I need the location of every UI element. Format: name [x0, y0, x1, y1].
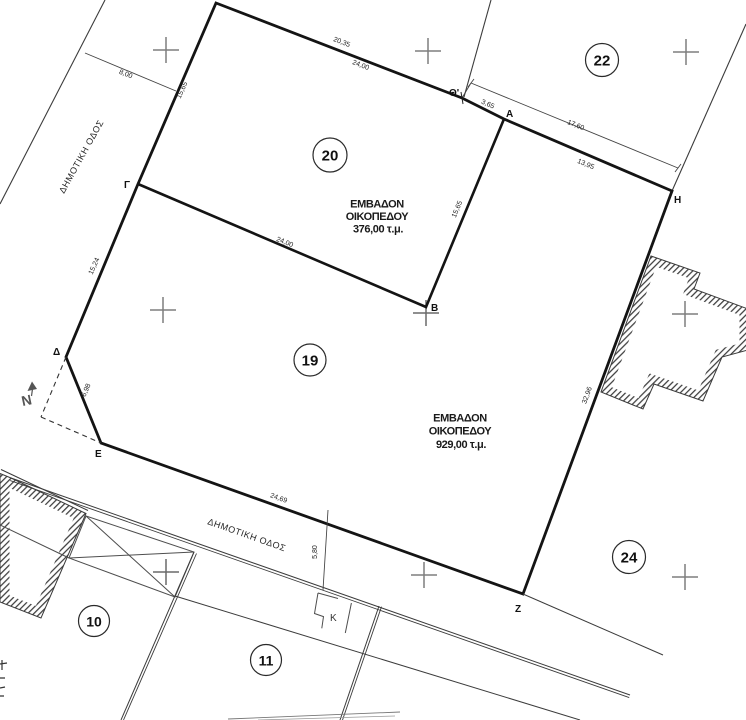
svg-text:ΟΙΚΟΠΕΔΟΥ: ΟΙΚΟΠΕΔΟΥ [429, 426, 493, 438]
svg-text:Δ: Δ [53, 347, 60, 358]
svg-text:Α: Α [506, 109, 513, 120]
svg-text:376,00 τ.μ.: 376,00 τ.μ. [353, 224, 403, 236]
svg-text:Κ: Κ [330, 613, 337, 624]
svg-text:22: 22 [594, 53, 611, 70]
svg-text:11: 11 [259, 653, 274, 669]
svg-text:ΕΜΒΑΔΟΝ: ΕΜΒΑΔΟΝ [350, 199, 404, 211]
svg-text:Θ': Θ' [449, 88, 459, 99]
svg-text:24: 24 [621, 550, 638, 567]
svg-text:Η: Η [674, 195, 681, 206]
svg-text:929,00 τ.μ.: 929,00 τ.μ. [436, 439, 486, 451]
svg-text:ΟΙΚΟΠΕΔΟΥ: ΟΙΚΟΠΕΔΟΥ [346, 211, 410, 223]
svg-text:Β: Β [431, 303, 438, 314]
svg-text:Ε: Ε [95, 449, 102, 460]
svg-text:20: 20 [322, 148, 339, 165]
svg-text:5,80: 5,80 [312, 545, 319, 559]
svg-text:10: 10 [86, 614, 102, 630]
svg-text:19: 19 [302, 353, 319, 370]
svg-text:Ζ: Ζ [515, 604, 521, 615]
svg-text:ΕΜΒΑΔΟΝ: ΕΜΒΑΔΟΝ [433, 413, 487, 425]
svg-text:Γ: Γ [124, 180, 130, 191]
